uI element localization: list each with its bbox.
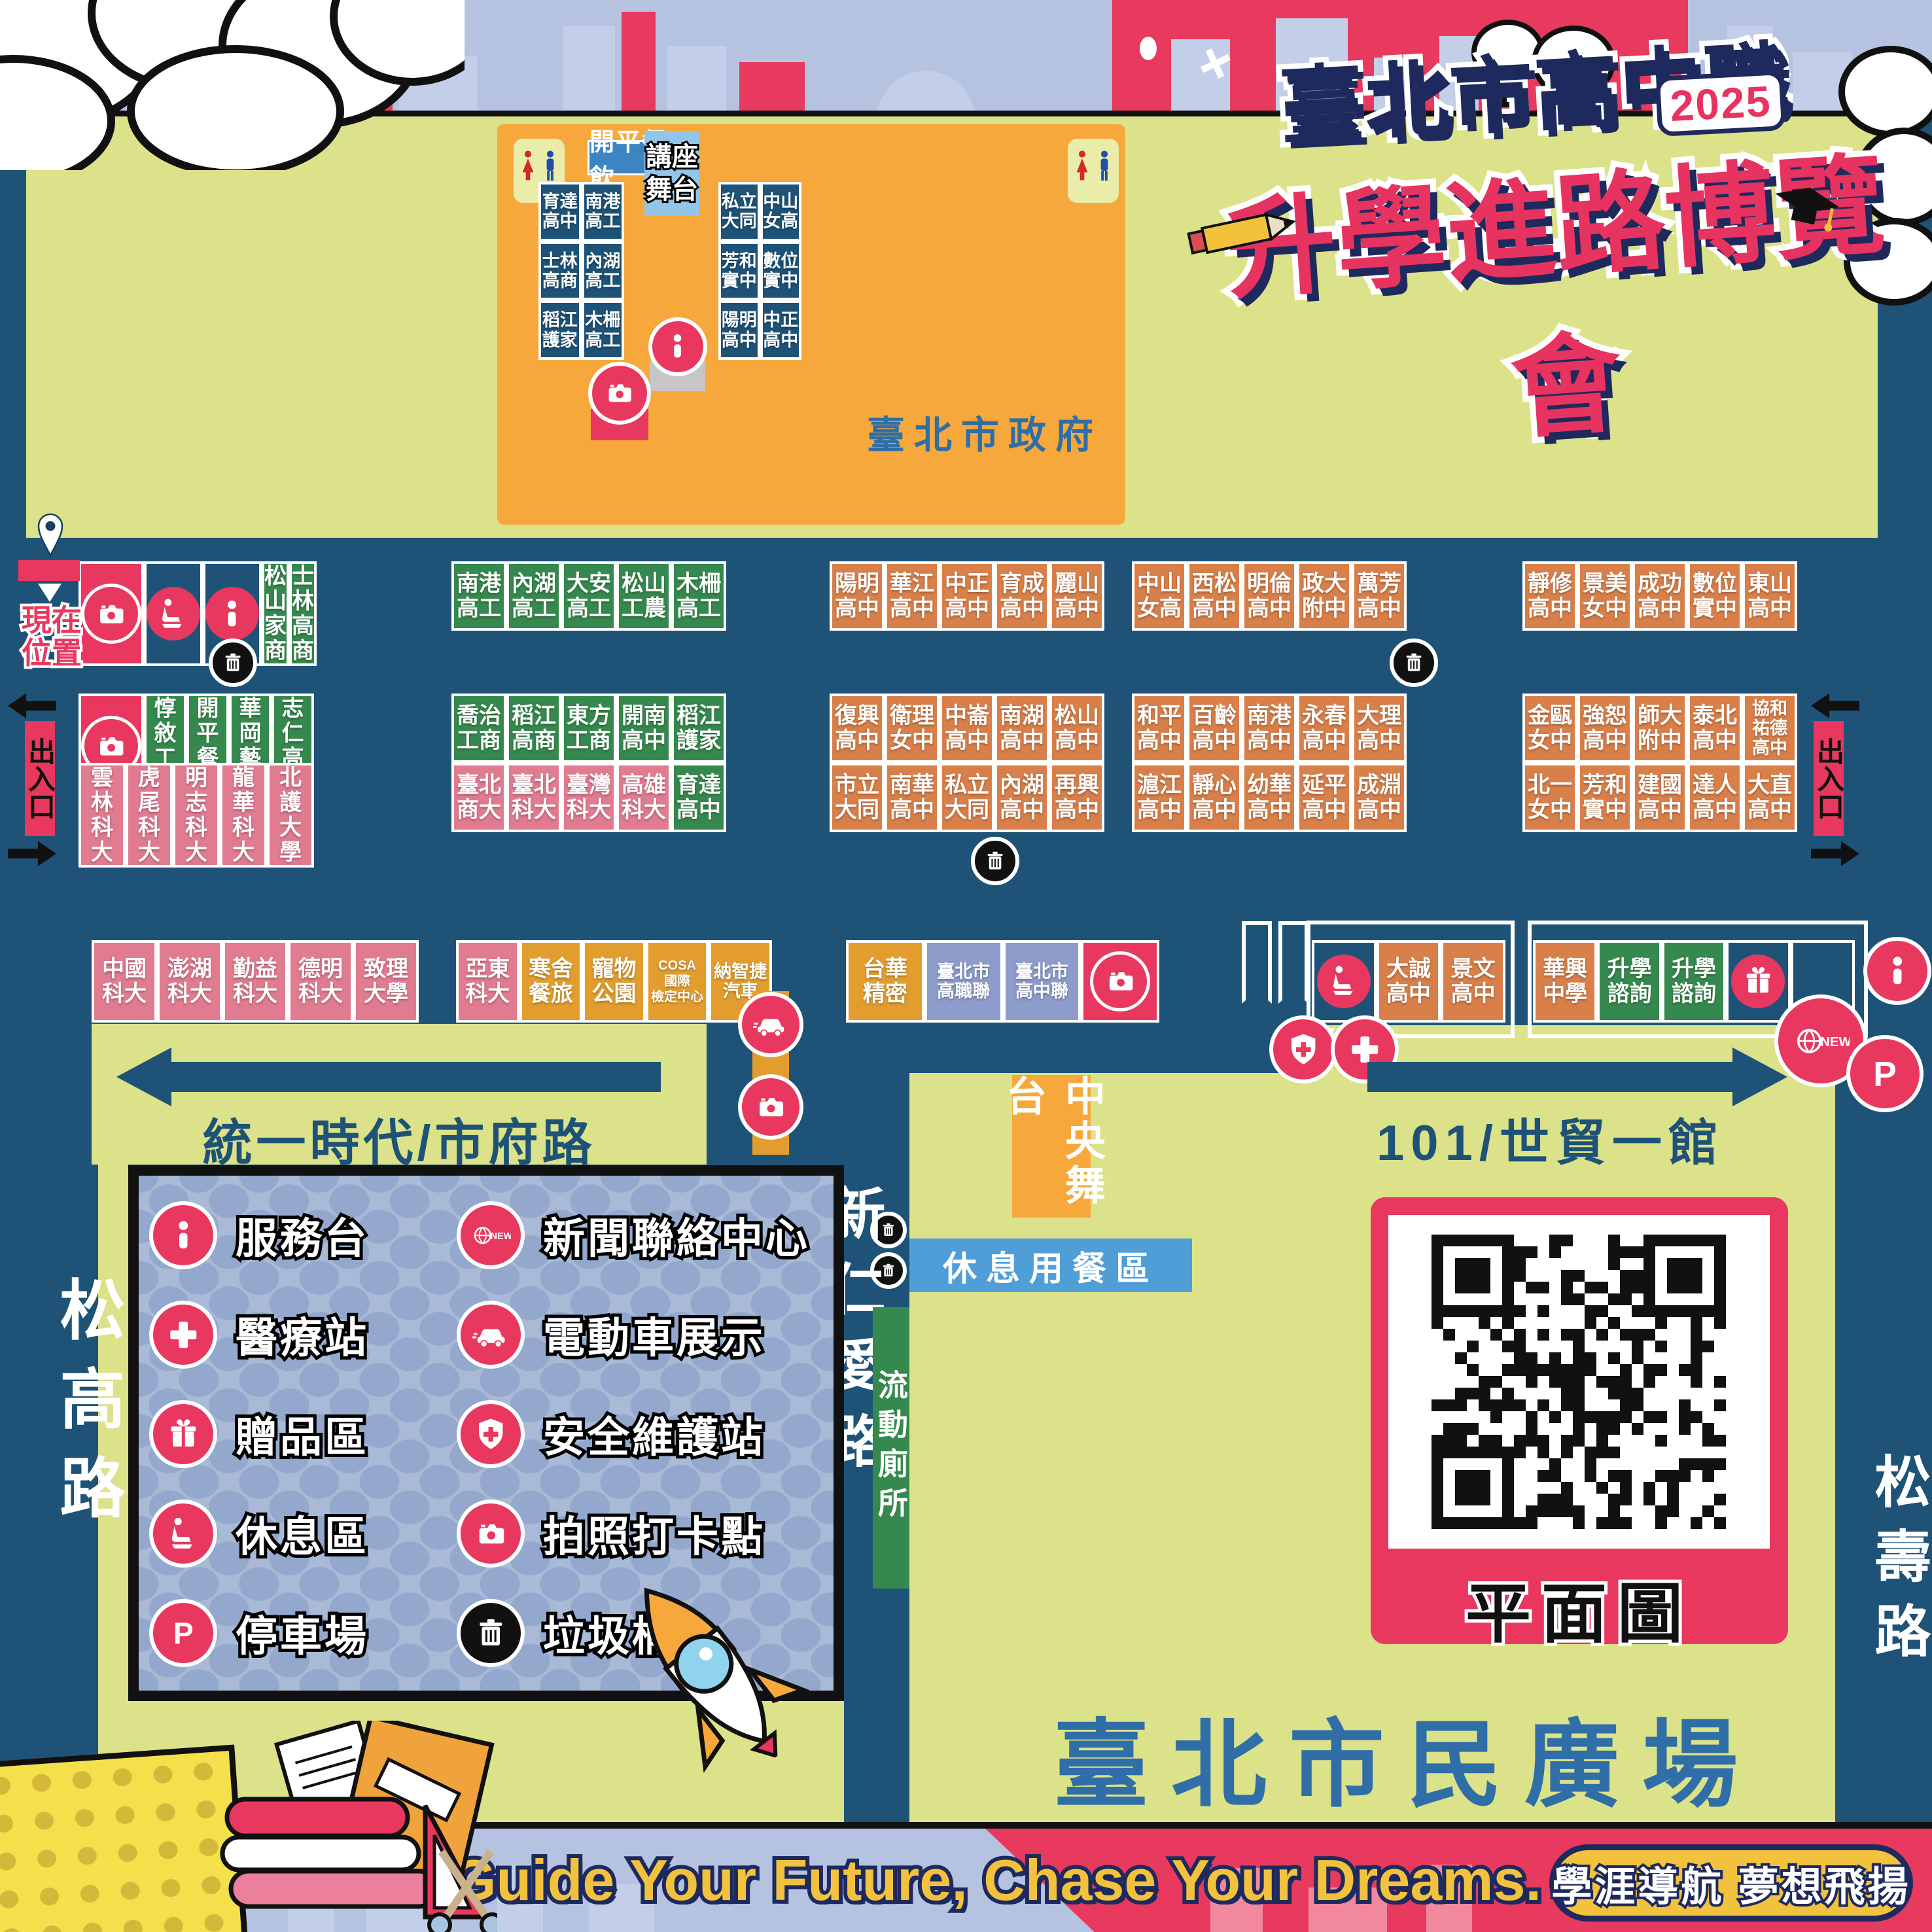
booth-cell: 致理 大學 xyxy=(353,940,419,1023)
legend-item: NEWS新聞聯絡中心 xyxy=(457,1201,823,1269)
shield-icon xyxy=(457,1400,525,1468)
legend-label: 新聞聯絡中心 xyxy=(543,1205,810,1265)
booth-cell: 木柵 高工 xyxy=(582,300,625,360)
booth-group: 台華 精密臺北市 高職聯臺北市 高中聯 xyxy=(846,940,1159,1023)
booth-cell: 南港 高工 xyxy=(582,182,625,241)
legend-label: 休息區 xyxy=(236,1503,369,1564)
booth-cell: 南華 高中 xyxy=(885,763,940,832)
booth-cell: 臺北 商大 xyxy=(451,763,506,832)
booth-group: 滬江 高中靜心 高中幼華 高中延平 高中成淵 高中 xyxy=(1132,763,1407,832)
booth-cell: 滬江 高中 xyxy=(1132,763,1187,832)
booth-cell: 松山 工農 xyxy=(616,561,671,631)
booth-cell: 和平 高中 xyxy=(1132,694,1187,763)
booth-cell: 高雄 科大 xyxy=(616,763,671,832)
gift-icon xyxy=(149,1400,217,1468)
booth-cell: 靜修 高中 xyxy=(1522,561,1577,631)
booth-cell: 延平 高中 xyxy=(1297,763,1352,832)
road-arrow-east xyxy=(1732,1047,1787,1106)
booth-cell: 再興 高中 xyxy=(1049,763,1104,832)
central-stage: 中央舞台 xyxy=(1012,1075,1091,1218)
booth-group: 復興 高中衛理 女中中崙 高中南湖 高中松山 高中 xyxy=(830,694,1104,763)
location-pin-icon xyxy=(34,512,67,561)
booth-cell: 育達 高中 xyxy=(538,182,582,241)
booth-group: 中國 科大澎湖 科大勤益 科大德明 科大致理 大學 xyxy=(92,940,419,1023)
booth-group: 惇敘 工商開平 餐飲華岡 藝校志仁 高中 xyxy=(79,694,314,763)
booth-cell: 士林 高商 xyxy=(538,241,582,301)
svg-text:P: P xyxy=(1873,1055,1897,1094)
building-shape xyxy=(1171,39,1230,116)
qr-label: 平面圖 xyxy=(1371,1560,1788,1655)
gift-icon xyxy=(1731,955,1785,1008)
booth-group: 喬治 工商稻江 高商東方 工商開南 高中稻江 護家 xyxy=(451,694,726,763)
man-icon xyxy=(1095,149,1114,192)
dining-area: 休息用餐區 xyxy=(909,1238,1192,1292)
camera-icon xyxy=(738,1074,803,1140)
booth-cell: 南港 高工 xyxy=(451,561,506,631)
building-shape xyxy=(739,62,805,116)
booth-cell: 臺灣 科大 xyxy=(561,763,616,832)
tower-101-shape xyxy=(622,12,656,116)
building-shape xyxy=(563,26,615,116)
legend-item: 休息區 xyxy=(149,1500,457,1568)
trash-icon xyxy=(457,1599,525,1667)
road-label-east: 101/世貿一館 xyxy=(1302,1102,1799,1174)
booth-cell: 台華 精密 xyxy=(846,940,924,1023)
camera-booth-cell xyxy=(79,561,144,666)
booth-cell: 大安 高工 xyxy=(561,561,616,631)
booth-cell: 成淵 高中 xyxy=(1352,763,1407,832)
books-illustration xyxy=(209,1721,497,1932)
shield-icon xyxy=(1269,1015,1337,1083)
portable-toilets: 流動廁所 xyxy=(873,1307,909,1589)
street-label-songgao: 松高路 xyxy=(39,1276,134,1543)
booth-cell: 東山 高中 xyxy=(1742,561,1797,631)
booth-group: 和平 高中百齡 高中南港 高中永春 高中大理 高中 xyxy=(1132,694,1407,763)
camera-icon xyxy=(588,362,651,425)
booth-cell: 北護 大學 xyxy=(267,763,314,868)
booth-cell: 大理 高中 xyxy=(1352,694,1407,763)
legend-label: 贈品區 xyxy=(236,1404,369,1464)
booth-cell: 松山 高中 xyxy=(1049,694,1104,763)
booth-cell: 升學 諮詢 xyxy=(1597,940,1661,1023)
booth-cell: 芳和 實中 xyxy=(1577,763,1632,832)
booth-cell: 內湖 高中 xyxy=(994,763,1049,832)
booth-cell: 師大 附中 xyxy=(1632,694,1687,763)
booth-cell: 陽明 高中 xyxy=(718,300,760,360)
banner-slogan-pill: 學涯導航 夢想飛揚 xyxy=(1549,1844,1913,1922)
svg-text:NEWS: NEWS xyxy=(490,1231,511,1242)
seat-icon xyxy=(1317,955,1371,1008)
current-location-label: 現在 位置 xyxy=(16,605,88,669)
woman-icon xyxy=(1072,149,1092,192)
legend-item: 服務台 xyxy=(149,1201,457,1269)
legend-label: 醫療站 xyxy=(236,1305,369,1365)
booth-cell: 亞東 科大 xyxy=(456,940,519,1023)
booth-group: 陽明 高中華江 高中中正 高中育成 高中麗山 高中 xyxy=(830,561,1104,631)
booth-cell: 內湖 高工 xyxy=(506,561,561,631)
arrow-right-icon xyxy=(1811,840,1859,868)
booth-cell: 私立 大同 xyxy=(940,763,994,832)
info-icon xyxy=(205,587,259,641)
booth-cell: 金甌 女中 xyxy=(1522,694,1577,763)
booth-group: 大誠 高中景文 高中 xyxy=(1312,940,1505,1023)
city-hall-label: 臺北市政府 xyxy=(844,404,1125,459)
booth-cell: 大直 高中 xyxy=(1742,763,1797,832)
booth-cell: COSA 國際 檢定中心 xyxy=(646,940,709,1023)
booth-cell: 稻江 高商 xyxy=(506,694,561,763)
legend-label: 服務台 xyxy=(236,1205,369,1265)
seat-booth-cell xyxy=(1312,940,1377,1023)
booth-cell: 開南 高中 xyxy=(616,694,671,763)
booth-cell: 麗山 高中 xyxy=(1049,561,1104,631)
booth-cell: 成功 高中 xyxy=(1632,561,1687,631)
booth-cell: 南湖 高中 xyxy=(994,694,1049,763)
svg-text:NEWS: NEWS xyxy=(1820,1035,1850,1049)
legend-label: 安全維護站 xyxy=(543,1404,765,1464)
moon-shape xyxy=(1140,37,1157,60)
cloud-shape xyxy=(0,0,465,170)
camera-icon xyxy=(81,584,141,644)
woman-icon xyxy=(518,149,538,192)
news-icon: NEWS xyxy=(457,1201,525,1269)
road-arrow-east-shaft xyxy=(1367,1062,1734,1092)
booth-cell: 升學 諮詢 xyxy=(1662,940,1726,1023)
booth-cell: 衛理 女中 xyxy=(885,694,940,763)
booth-cell: 萬芳 高中 xyxy=(1352,561,1407,631)
title-year: 2025 xyxy=(1669,76,1773,131)
booth-cell: 中山 女高 xyxy=(760,182,802,241)
booth-cell: 內湖 高工 xyxy=(582,241,625,301)
dome-building-shape xyxy=(877,71,975,116)
plaza-label: 臺北市民廣場 xyxy=(942,1688,1871,1826)
booth-cell: 明倫 高中 xyxy=(1242,561,1297,631)
booth-group: 亞東 科大寒舍 餐旅寵物 公園COSA 國際 檢定中心納智捷 汽車 xyxy=(456,940,772,1023)
booth-cell: 復興 高中 xyxy=(830,694,885,763)
booth-cell: 喬治 工商 xyxy=(451,694,506,763)
booth-cell: 雲林 科大 xyxy=(79,763,126,868)
booth-cell: 稻江 護家 xyxy=(538,300,582,360)
booth-cell: 華江 高中 xyxy=(885,561,940,631)
booth-cell: 百齡 高中 xyxy=(1187,694,1242,763)
banner-slogan-zh: 學涯導航 夢想飛揚 xyxy=(1551,1853,1910,1912)
seat-icon xyxy=(147,587,200,641)
restroom-right xyxy=(1068,139,1119,203)
booth-cell: 稻江 護家 xyxy=(671,694,726,763)
lecture-stage: 講座 舞台 xyxy=(644,131,699,216)
qr-code xyxy=(1431,1235,1726,1529)
parking-icon: P xyxy=(149,1599,217,1667)
legend-label: 電動車展示 xyxy=(543,1305,765,1365)
legend-item: 電動車展示 xyxy=(457,1301,823,1369)
booth-cell: 寒舍 餐旅 xyxy=(519,940,583,1023)
booth-cell: 幼華 高中 xyxy=(1242,763,1297,832)
booth-cell: 景美 女中 xyxy=(1577,561,1632,631)
seat-icon xyxy=(149,1500,217,1568)
entrance-label-west: 出入口 xyxy=(25,721,55,836)
legend-item: 拍照打卡點 xyxy=(457,1500,823,1568)
road-arrow-west-shaft xyxy=(169,1062,661,1092)
arrow-left-icon xyxy=(1811,692,1859,720)
car-icon xyxy=(457,1301,525,1369)
road-label-west: 統一時代/市府路 xyxy=(105,1102,694,1174)
city-hall-booths-left: 育達 高中南港 高工士林 高商內湖 高工稻江 護家木柵 高工 xyxy=(538,182,624,360)
booth-cell: 建國 高中 xyxy=(1632,763,1687,832)
booth-cell: 永春 高中 xyxy=(1297,694,1352,763)
booth-cell: 松山 家商 xyxy=(262,561,289,666)
expo-floor-map: 開平餐飲 講座 舞台 育達 高中南港 高工士林 高商內湖 高工稻江 護家木柵 高… xyxy=(0,0,1932,1932)
trash-icon xyxy=(209,639,257,687)
legend-item: 醫療站 xyxy=(149,1301,457,1369)
booth-cell: 協和 祐德 高中 xyxy=(1742,694,1797,763)
booth-cell: 臺北市 高中聯 xyxy=(1003,940,1081,1023)
banner-slogan-en: Guide Your Future, Chase Your Dreams. xyxy=(451,1847,1531,1914)
booth-group: 市立 大同南華 高中私立 大同內湖 高中再興 高中 xyxy=(830,763,1104,832)
booth-cell: 芳和 實中 xyxy=(718,241,760,301)
ev-car-icon xyxy=(738,992,803,1057)
current-location-pointer xyxy=(38,584,61,602)
booth-group: 松山 家商士林 高商 xyxy=(79,561,314,631)
camera-icon xyxy=(1090,951,1150,1011)
booth-cell: 中山 女高 xyxy=(1132,561,1187,631)
legend-item: 安全維護站 xyxy=(457,1400,823,1468)
booth-cell: 景文 高中 xyxy=(1441,940,1505,1023)
booth-group: 臺北 商大臺北 科大臺灣 科大高雄 科大育達 高中 xyxy=(451,763,726,832)
booth-cell: 寵物 公園 xyxy=(582,940,646,1023)
booth-cell: 數位 實中 xyxy=(1687,561,1742,631)
booth-cell: 中崙 高中 xyxy=(940,694,994,763)
arrow-right-icon xyxy=(8,840,56,868)
legend-label: 停車場 xyxy=(236,1603,369,1663)
title-line2: 升學進路博覽會 xyxy=(1190,114,1930,482)
booth-cell: 華興 中學 xyxy=(1533,940,1597,1023)
city-hall-booths-right: 私立 大同中山 女高芳和 實中數位 實中陽明 高中中正 高中 xyxy=(718,182,801,360)
booth-cell: 東方 工商 xyxy=(561,694,616,763)
booth-cell: 南港 高中 xyxy=(1242,694,1297,763)
info-icon xyxy=(648,317,707,376)
gift-booth-cell xyxy=(1726,940,1790,1023)
booth-cell: 臺北市 高職聯 xyxy=(924,940,1003,1023)
legend-item: P停車場 xyxy=(149,1599,457,1667)
arrow-left-icon xyxy=(8,692,56,720)
flag-shape xyxy=(1278,921,1308,1004)
booth-cell: 木柵 高工 xyxy=(671,561,726,631)
booth-cell: 中正 高中 xyxy=(940,561,994,631)
trash-icon xyxy=(971,837,1019,885)
booth-cell: 德明 科大 xyxy=(288,940,353,1023)
booth-cell: 澎湖 科大 xyxy=(157,940,222,1023)
camera-icon xyxy=(457,1500,525,1568)
parking-icon: P xyxy=(1846,1035,1923,1112)
booth-cell: 陽明 高中 xyxy=(830,561,885,631)
legend-item: 贈品區 xyxy=(149,1400,457,1468)
cross-icon xyxy=(149,1301,217,1369)
booth-cell: 虎尾 科大 xyxy=(126,763,173,868)
booth-cell: 勤益 科大 xyxy=(222,940,288,1023)
booth-group: 金甌 女中強恕 高中師大 附中泰北 高中協和 祐德 高中 xyxy=(1522,694,1797,763)
info-icon xyxy=(1863,937,1931,1005)
building-shape xyxy=(667,46,726,116)
booth-cell: 靜心 高中 xyxy=(1187,763,1242,832)
booth-cell: 明志 科大 xyxy=(173,763,220,868)
booth-cell: 育達 高中 xyxy=(671,763,726,832)
booth-cell: 私立 大同 xyxy=(718,182,760,241)
legend-label: 拍照打卡點 xyxy=(543,1503,765,1564)
booth-group: 中山 女高西松 高中明倫 高中政大 附中萬芳 高中 xyxy=(1132,561,1407,631)
booth-cell: 北一 女中 xyxy=(1522,763,1577,832)
booth-group: 南港 高工內湖 高工大安 高工松山 工農木柵 高工 xyxy=(451,561,726,631)
booth-cell: 中正 高中 xyxy=(760,300,802,360)
info-icon xyxy=(149,1201,217,1269)
road-arrow-west xyxy=(116,1047,171,1106)
booth-group: 靜修 高中景美 女中成功 高中數位 實中東山 高中 xyxy=(1522,561,1797,631)
booth-cell: 士林 高商 xyxy=(289,561,317,666)
booth-cell: 強恕 高中 xyxy=(1577,694,1632,763)
booth-cell: 大誠 高中 xyxy=(1377,940,1441,1023)
booth-cell: 市立 大同 xyxy=(830,763,885,832)
camera-booth-cell xyxy=(1081,940,1159,1023)
booth-cell: 中國 科大 xyxy=(92,940,157,1023)
booth-cell: 龍華 科大 xyxy=(220,763,267,868)
trash-icon xyxy=(1390,639,1438,687)
booth-cell: 育成 高中 xyxy=(994,561,1049,631)
flag-shape xyxy=(1242,921,1272,1004)
booth-group: 北一 女中芳和 實中建國 高中達人 高中大直 高中 xyxy=(1522,763,1797,832)
booth-cell: 政大 附中 xyxy=(1297,561,1352,631)
booth-cell: 數位 實中 xyxy=(760,241,802,301)
booth-cell: 西松 高中 xyxy=(1187,561,1242,631)
current-location-bar xyxy=(18,560,80,581)
entrance-label-east: 出入口 xyxy=(1814,721,1844,836)
booth-cell: 泰北 高中 xyxy=(1687,694,1742,763)
seat-booth-cell xyxy=(144,561,203,666)
svg-text:P: P xyxy=(173,1616,194,1650)
booth-group: 雲林 科大虎尾 科大明志 科大龍華 科大北護 大學 xyxy=(79,763,314,832)
booth-cell: 臺北 科大 xyxy=(506,763,561,832)
booth-cell: 達人 高中 xyxy=(1687,763,1742,832)
street-label-songshou: 松壽路 xyxy=(1857,1452,1932,1676)
